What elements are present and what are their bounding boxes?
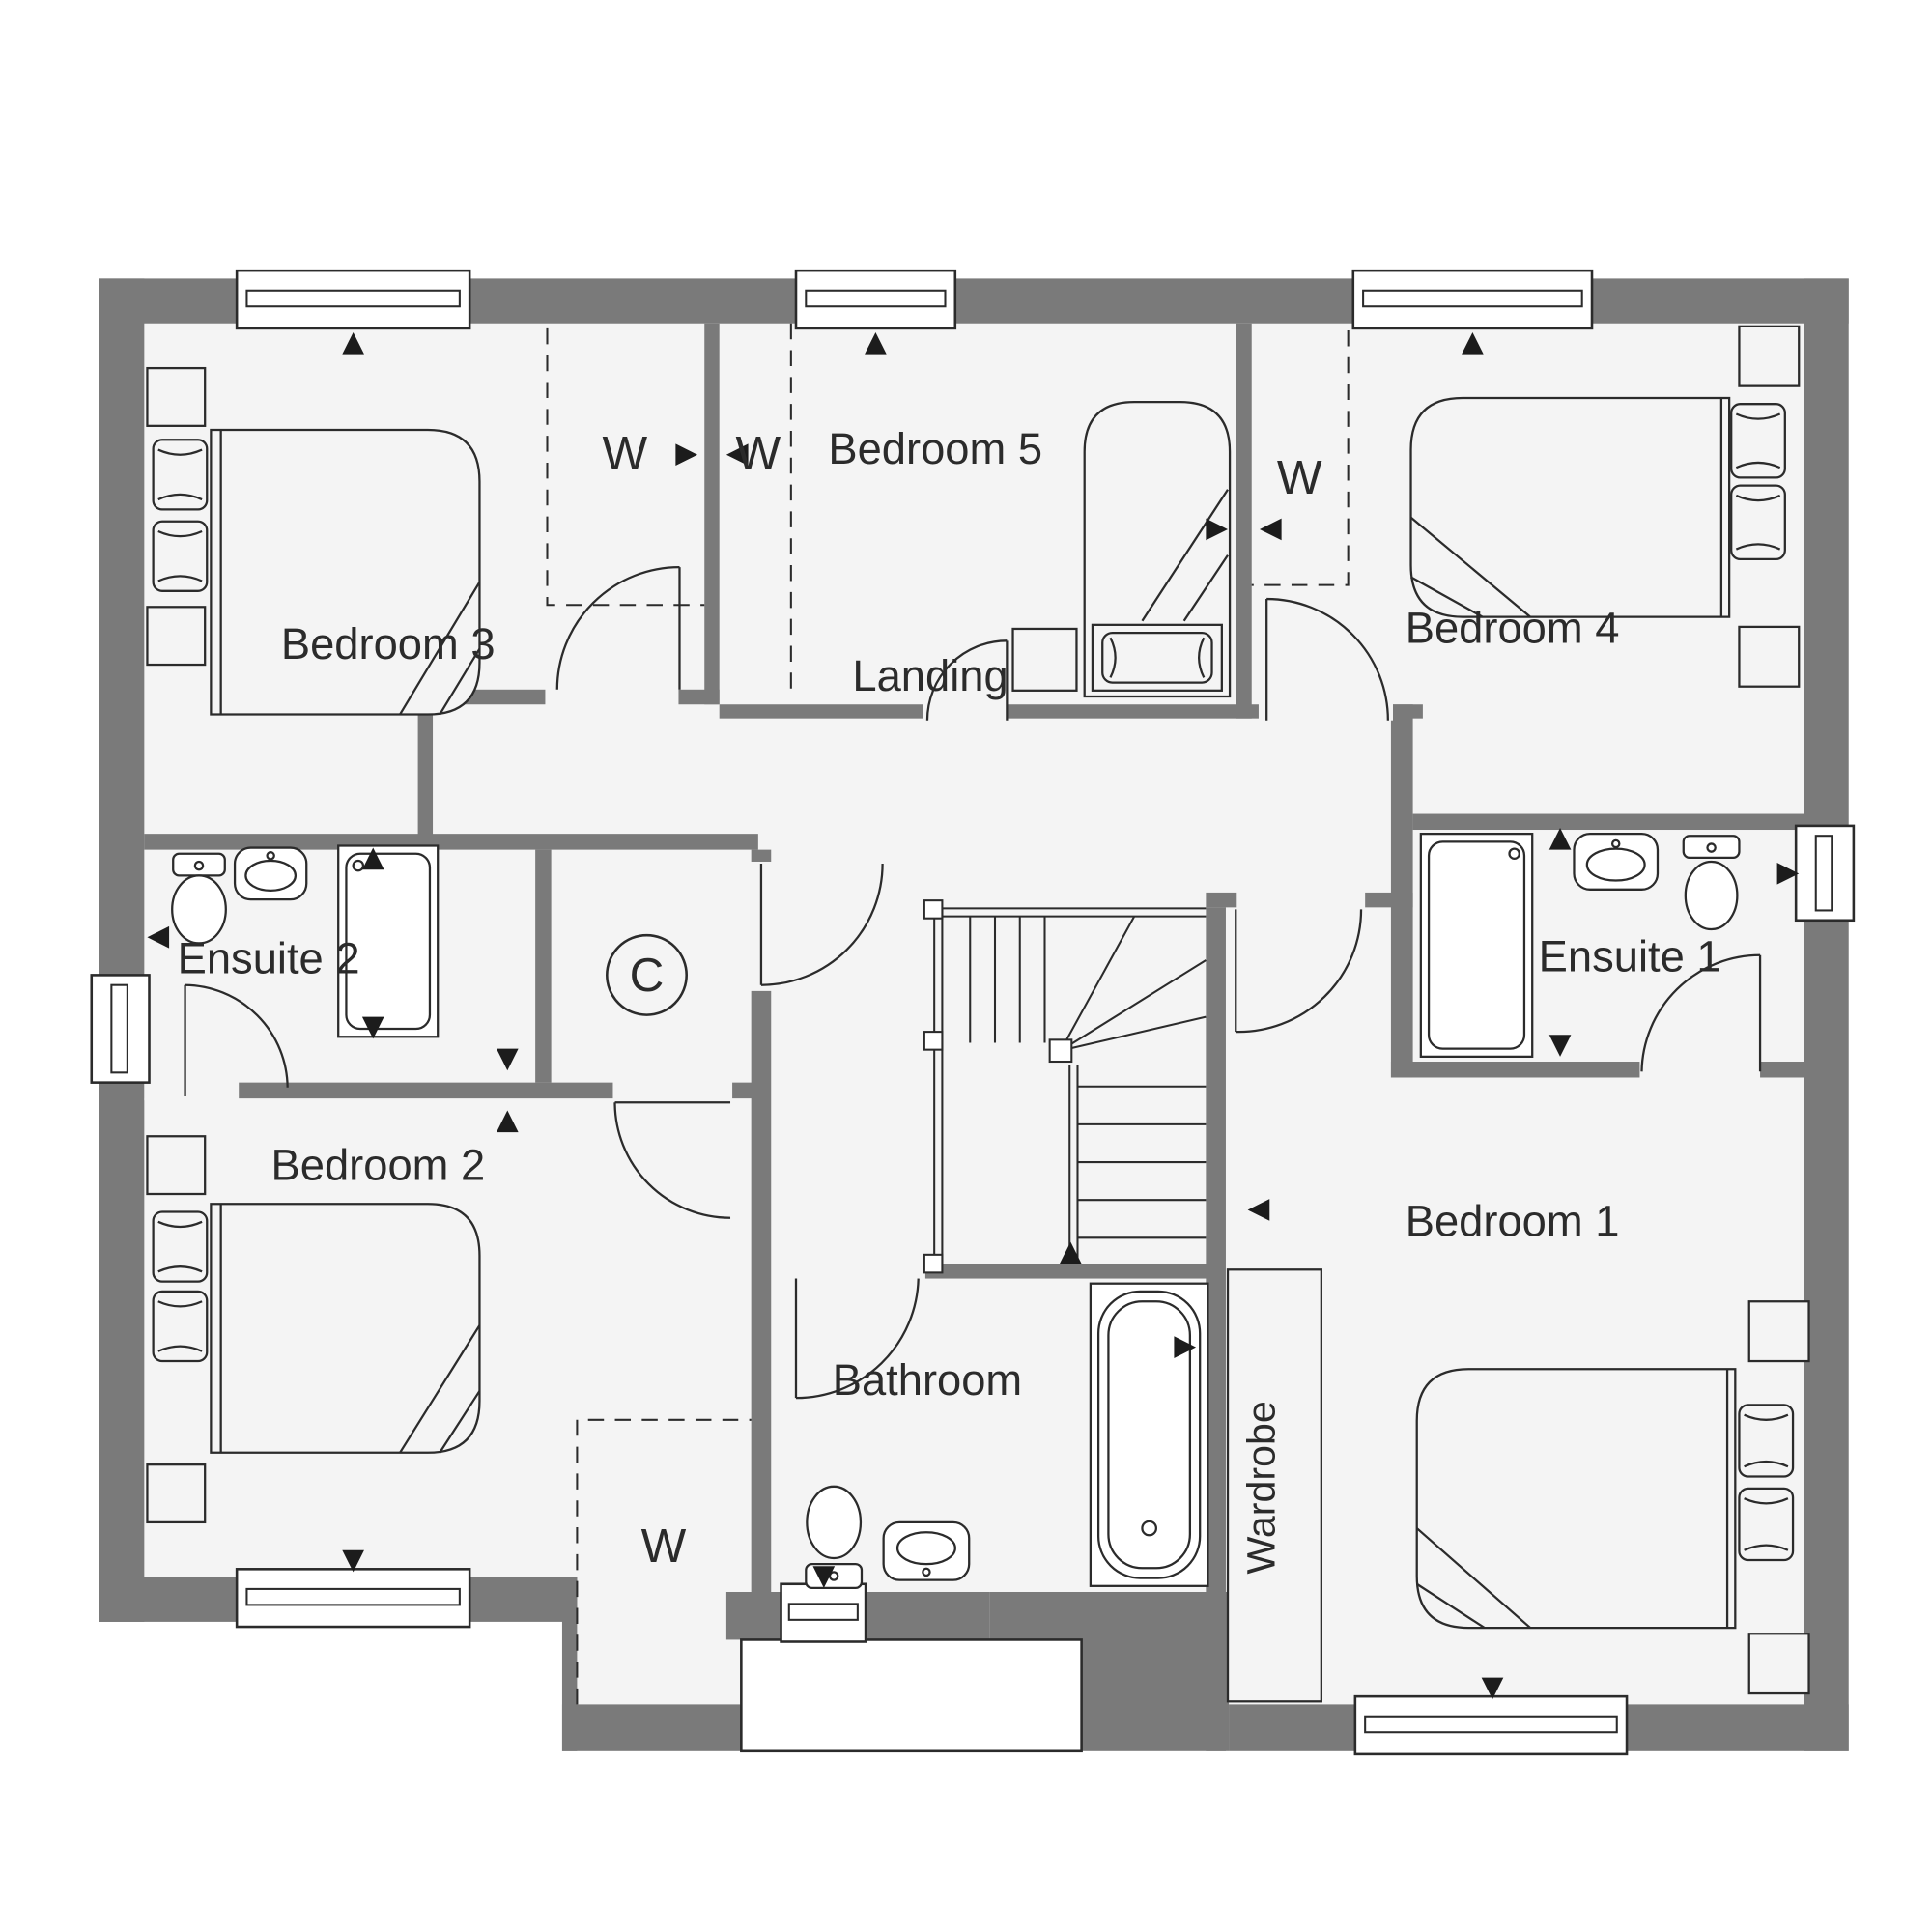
label-wardrobe-w-bedroom5: W	[736, 427, 781, 480]
pillow	[154, 1212, 208, 1282]
bedside-table	[147, 368, 205, 426]
door-gap-bedroom1	[1236, 891, 1365, 910]
bed-outline	[1411, 398, 1730, 617]
bedside-table	[1739, 327, 1799, 386]
wall-cupboard-west	[535, 850, 551, 1083]
wall-exterior-left	[99, 278, 144, 1621]
label-bedroom4: Bedroom 4	[1406, 603, 1620, 652]
bed-outline	[211, 1204, 479, 1453]
label-wardrobe-w-bedroom3: W	[603, 427, 648, 480]
wall-ensuite1-north	[1413, 814, 1804, 830]
pillow	[154, 1292, 208, 1361]
label-bedroom3: Bedroom 3	[281, 619, 496, 668]
bedside-table	[147, 1464, 205, 1522]
window-bedroom5	[796, 270, 955, 328]
door-gap-bedroom2	[612, 1081, 732, 1101]
bedside-table	[1749, 1301, 1809, 1361]
bedside-table	[1749, 1634, 1809, 1693]
porch-canopy-outline	[741, 1639, 1081, 1750]
label-wardrobe-w-bedroom2: W	[641, 1520, 687, 1573]
label-bedroom1: Bedroom 1	[1406, 1196, 1620, 1245]
label-wardrobe-w-bedroom4: W	[1277, 451, 1322, 504]
wall-step-bottom	[562, 1704, 741, 1750]
wall-ensuite2-north	[144, 834, 758, 849]
label-wardrobe-bedroom1: Wardrobe	[1238, 1401, 1283, 1574]
label-bathroom: Bathroom	[833, 1355, 1022, 1405]
bath-icon	[1091, 1284, 1208, 1586]
bedside-table	[1013, 629, 1077, 691]
door-gap-bedroom3	[545, 688, 678, 707]
basin-icon	[1574, 834, 1658, 890]
window-bedroom4	[1353, 270, 1592, 328]
wall-closet-divider	[704, 324, 719, 704]
floor-plan-svg: Bedroom 3 Bedroom 5 Bedroom 4 Landing En…	[0, 0, 1932, 1932]
label-ensuite2: Ensuite 2	[178, 933, 360, 982]
label-bedroom2: Bedroom 2	[271, 1141, 486, 1190]
window-bathroom	[781, 1584, 867, 1642]
pillow	[154, 440, 208, 509]
door-gap-ensuite2-lobby	[144, 1081, 239, 1101]
basin-icon	[884, 1522, 970, 1580]
label-cupboard-c: C	[630, 949, 665, 1002]
door-gap-bathroom	[784, 1262, 925, 1281]
window-bedroom3	[237, 270, 469, 328]
bedside-table	[147, 1136, 205, 1194]
label-landing: Landing	[852, 651, 1008, 700]
pillow	[1731, 486, 1785, 559]
wall-exterior-right	[1804, 278, 1848, 1750]
wall-bathroom-north	[923, 1264, 1209, 1278]
door-gap-bedroom4	[1259, 702, 1393, 721]
window-bedroom1	[1355, 1696, 1627, 1754]
toilet-icon	[1684, 836, 1740, 929]
bed-outline	[1417, 1369, 1736, 1628]
door-gap-ensuite1	[1639, 1060, 1760, 1080]
pillow	[1102, 633, 1211, 683]
label-bedroom5: Bedroom 5	[828, 424, 1042, 473]
window-ensuite1-side	[1796, 826, 1854, 921]
bedside-table	[1739, 627, 1799, 687]
bed-outline	[211, 430, 479, 715]
basin-icon	[235, 848, 306, 900]
pillow	[1739, 1405, 1793, 1476]
pillow	[1739, 1489, 1793, 1560]
toilet-icon	[806, 1487, 862, 1588]
shower-icon	[1421, 834, 1532, 1057]
bedside-table	[147, 607, 205, 665]
wall-bedroom5-bedroom4-divider	[1236, 324, 1251, 719]
pillow	[154, 522, 208, 591]
pillow	[1731, 404, 1785, 477]
window-bedroom2	[237, 1569, 469, 1627]
wall-ensuite1-west	[1391, 704, 1413, 1077]
window-ensuite2-side	[92, 975, 150, 1082]
label-ensuite1: Ensuite 1	[1539, 931, 1721, 980]
floor-plan-page: Bedroom 3 Bedroom 5 Bedroom 4 Landing En…	[0, 0, 1932, 1932]
toilet-icon	[172, 854, 226, 944]
door-gap-bedroom5	[923, 702, 1008, 721]
